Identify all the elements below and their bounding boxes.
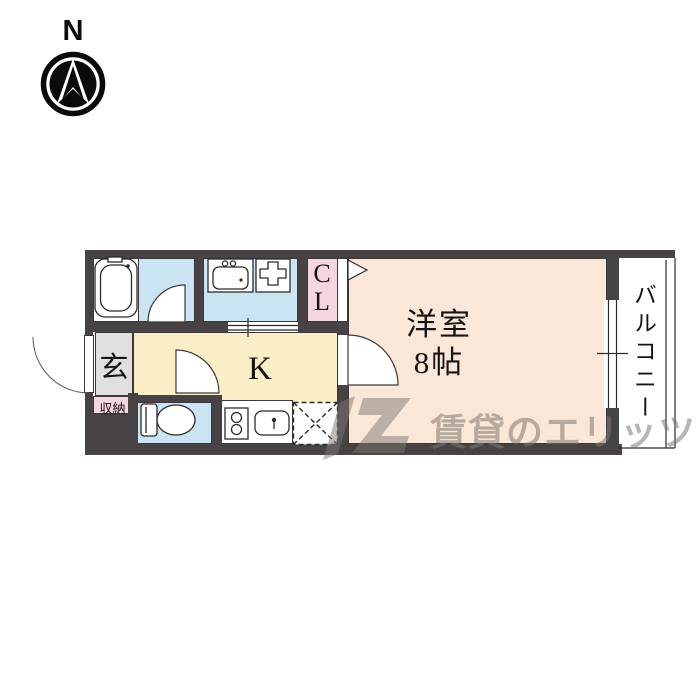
entrance-label: 玄 — [95, 344, 133, 386]
kitchen-door-arc — [176, 350, 219, 393]
closet-folding-door-icon — [348, 260, 367, 280]
floorplan-page: N 洋室 8帖 K CL 玄 収納 バルコニー 賃貸のエリッツ — [0, 0, 700, 700]
compass-icon — [44, 55, 103, 114]
western-room-name: 洋室 — [348, 306, 530, 344]
kitchen-sink-icon — [255, 411, 289, 435]
washbasin-icon — [208, 259, 253, 292]
washing-machine-pan-icon — [256, 259, 290, 292]
kitchen-label: K — [225, 351, 295, 388]
closet-label: CL — [308, 260, 336, 316]
toilet-icon — [141, 404, 195, 436]
north-label: N — [51, 15, 95, 48]
entry-door-arc — [33, 337, 89, 393]
bathtub-icon — [95, 257, 137, 317]
watermark-text: 賃貸のエリッツ — [430, 402, 696, 456]
sliding-door-icon — [228, 318, 298, 337]
storage-label: 収納 — [93, 398, 132, 417]
stove-icon — [225, 408, 248, 439]
western-room-size: 8帖 — [348, 344, 530, 382]
bathroom-door-arc — [148, 285, 185, 322]
western-room-label: 洋室 8帖 — [348, 306, 530, 382]
